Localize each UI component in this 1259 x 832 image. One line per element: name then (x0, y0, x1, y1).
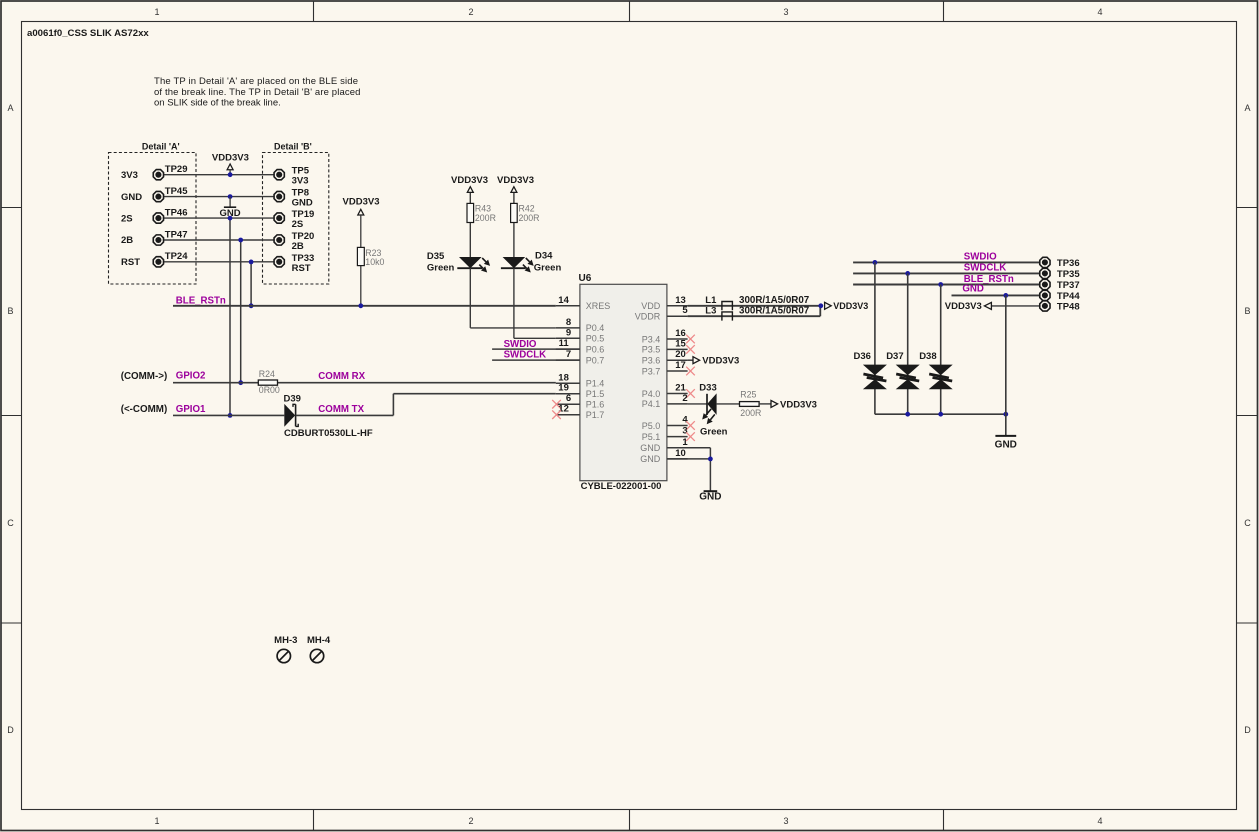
svg-text:SWDIO: SWDIO (504, 339, 537, 350)
svg-text:3: 3 (783, 7, 788, 17)
svg-text:P1.6: P1.6 (586, 400, 605, 410)
svg-text:D: D (1244, 725, 1251, 735)
svg-text:9: 9 (566, 327, 571, 338)
svg-text:P0.7: P0.7 (586, 355, 605, 365)
svg-text:300R/1A5/0R07: 300R/1A5/0R07 (739, 305, 810, 316)
svg-text:200R: 200R (519, 213, 540, 223)
svg-text:1: 1 (154, 816, 159, 826)
svg-text:P5.1: P5.1 (642, 432, 661, 442)
svg-text:TP47: TP47 (165, 229, 188, 240)
svg-text:SWDIO: SWDIO (964, 252, 997, 263)
svg-text:2B: 2B (121, 235, 133, 246)
svg-text:GPIO2: GPIO2 (176, 371, 206, 382)
svg-text:2: 2 (682, 393, 687, 404)
svg-text:on SLIK side of the break line: on SLIK side of the break line. (154, 98, 281, 109)
svg-text:12: 12 (558, 404, 569, 415)
svg-text:A: A (7, 103, 13, 113)
svg-text:a0061f0_CSS SLIK AS72xx: a0061f0_CSS SLIK AS72xx (27, 28, 149, 39)
svg-text:D33: D33 (699, 382, 716, 393)
svg-text:VDD3V3: VDD3V3 (497, 175, 534, 186)
svg-text:1: 1 (682, 437, 688, 448)
svg-text:18: 18 (558, 372, 569, 383)
svg-text:U6: U6 (579, 273, 592, 284)
svg-text:TP29: TP29 (165, 164, 188, 175)
svg-text:GND: GND (121, 192, 142, 203)
svg-text:BLE_RSTn: BLE_RSTn (176, 295, 226, 306)
svg-text:GND: GND (995, 440, 1017, 451)
svg-text:Detail 'A': Detail 'A' (142, 142, 180, 152)
svg-text:RST: RST (292, 263, 311, 274)
svg-text:2S: 2S (121, 213, 133, 224)
svg-text:SWDCLK: SWDCLK (964, 263, 1007, 274)
svg-text:GND: GND (292, 198, 313, 209)
svg-text:D: D (7, 725, 14, 735)
svg-text:GPIO1: GPIO1 (176, 404, 206, 415)
svg-text:CYBLE-022001-00: CYBLE-022001-00 (581, 481, 662, 492)
svg-text:Detail 'B': Detail 'B' (274, 142, 312, 152)
svg-text:L3: L3 (705, 305, 716, 316)
svg-text:R24: R24 (259, 369, 275, 379)
svg-text:P3.7: P3.7 (642, 366, 661, 376)
svg-text:R42: R42 (519, 203, 535, 213)
svg-text:MH-4: MH-4 (307, 635, 331, 646)
svg-text:4: 4 (1097, 816, 1102, 826)
svg-text:P0.6: P0.6 (586, 344, 605, 354)
svg-text:Green: Green (700, 426, 728, 437)
svg-text:10: 10 (675, 448, 686, 459)
svg-text:VDD3V3: VDD3V3 (833, 301, 868, 311)
svg-text:2: 2 (468, 7, 473, 17)
svg-text:GND: GND (962, 284, 984, 295)
svg-text:D38: D38 (919, 351, 936, 362)
svg-text:P1.4: P1.4 (586, 379, 605, 389)
svg-text:3V3: 3V3 (292, 176, 309, 187)
svg-text:11: 11 (559, 338, 570, 349)
svg-text:21: 21 (675, 383, 686, 394)
svg-text:GND: GND (699, 491, 721, 502)
svg-text:10k0: 10k0 (365, 257, 384, 267)
svg-text:TP46: TP46 (165, 208, 188, 219)
svg-text:VDD3V3: VDD3V3 (702, 356, 739, 367)
svg-text:B: B (1244, 306, 1250, 316)
svg-text:16: 16 (675, 328, 686, 339)
svg-text:2B: 2B (292, 241, 304, 252)
svg-text:P4.0: P4.0 (642, 389, 661, 399)
svg-text:Green: Green (534, 262, 562, 273)
svg-text:VDD3V3: VDD3V3 (780, 399, 817, 410)
svg-text:13: 13 (675, 295, 686, 306)
svg-text:D35: D35 (427, 251, 445, 262)
svg-text:2S: 2S (292, 219, 304, 230)
svg-text:D39: D39 (284, 394, 301, 405)
svg-text:TP45: TP45 (165, 186, 188, 197)
svg-text:TP44: TP44 (1057, 291, 1080, 302)
svg-text:7: 7 (566, 349, 571, 360)
svg-text:C: C (1244, 518, 1251, 528)
svg-text:P1.5: P1.5 (586, 389, 605, 399)
svg-text:R25: R25 (740, 389, 756, 399)
svg-text:VDD: VDD (641, 301, 661, 311)
svg-text:C: C (7, 518, 14, 528)
svg-text:P5.0: P5.0 (642, 421, 661, 431)
svg-text:6: 6 (566, 393, 571, 404)
svg-text:RST: RST (121, 257, 140, 268)
svg-text:COMM RX: COMM RX (318, 371, 365, 382)
svg-text:5: 5 (682, 305, 688, 316)
svg-text:TP35: TP35 (1057, 269, 1080, 280)
svg-text:200R: 200R (475, 213, 496, 223)
svg-text:VDD3V3: VDD3V3 (343, 197, 380, 208)
svg-text:The TP in Detail 'A' are place: The TP in Detail 'A' are placed on the B… (154, 76, 358, 87)
svg-text:P0.5: P0.5 (586, 334, 605, 344)
svg-text:TP48: TP48 (1057, 301, 1080, 312)
svg-text:3V3: 3V3 (121, 170, 138, 181)
svg-text:4: 4 (1097, 7, 1102, 17)
svg-text:GND: GND (640, 443, 661, 453)
svg-text:P0.4: P0.4 (586, 323, 605, 333)
svg-text:D37: D37 (886, 351, 903, 362)
svg-text:17: 17 (675, 360, 686, 371)
svg-text:Green: Green (427, 263, 455, 274)
svg-text:MH-3: MH-3 (274, 635, 297, 646)
svg-text:VDD3V3: VDD3V3 (212, 153, 249, 164)
svg-text:SWDCLK: SWDCLK (504, 350, 547, 361)
svg-text:XRES: XRES (586, 301, 611, 311)
svg-text:P3.4: P3.4 (642, 334, 661, 344)
svg-text:A: A (1244, 103, 1250, 113)
svg-text:8: 8 (566, 317, 571, 328)
svg-text:4: 4 (682, 415, 688, 426)
svg-text:0R00: 0R00 (259, 385, 280, 395)
svg-text:300R/1A5/0R07: 300R/1A5/0R07 (739, 295, 810, 306)
svg-text:19: 19 (558, 383, 569, 394)
svg-text:D36: D36 (854, 351, 871, 362)
svg-text:2: 2 (468, 816, 473, 826)
svg-text:of the break line. The TP in D: of the break line. The TP in Detail 'B' … (154, 87, 361, 98)
svg-text:20: 20 (675, 349, 686, 360)
svg-text:GND: GND (640, 454, 661, 464)
svg-text:B: B (7, 306, 13, 316)
svg-text:P1.7: P1.7 (586, 410, 605, 420)
svg-text:R43: R43 (475, 203, 491, 213)
svg-text:15: 15 (675, 338, 686, 349)
svg-text:CDBURT0530LL-HF: CDBURT0530LL-HF (284, 428, 373, 439)
svg-text:(<-COMM): (<-COMM) (121, 404, 168, 415)
svg-text:TP24: TP24 (165, 251, 188, 262)
svg-text:(COMM->): (COMM->) (121, 371, 168, 382)
svg-text:TP37: TP37 (1057, 280, 1080, 291)
svg-text:VDD3V3: VDD3V3 (945, 301, 982, 312)
svg-text:3: 3 (682, 426, 687, 437)
svg-text:P3.6: P3.6 (642, 356, 661, 366)
svg-text:1: 1 (154, 7, 159, 17)
svg-text:200R: 200R (740, 408, 761, 418)
svg-text:VDD3V3: VDD3V3 (451, 175, 488, 186)
svg-text:P3.5: P3.5 (642, 345, 661, 355)
svg-text:3: 3 (783, 816, 788, 826)
svg-text:14: 14 (558, 295, 569, 306)
svg-text:L1: L1 (705, 295, 717, 306)
svg-text:COMM TX: COMM TX (318, 404, 364, 415)
svg-text:VDDR: VDDR (635, 312, 661, 322)
svg-text:D34: D34 (535, 250, 553, 261)
svg-text:P4.1: P4.1 (642, 399, 661, 409)
svg-text:TP36: TP36 (1057, 258, 1080, 269)
